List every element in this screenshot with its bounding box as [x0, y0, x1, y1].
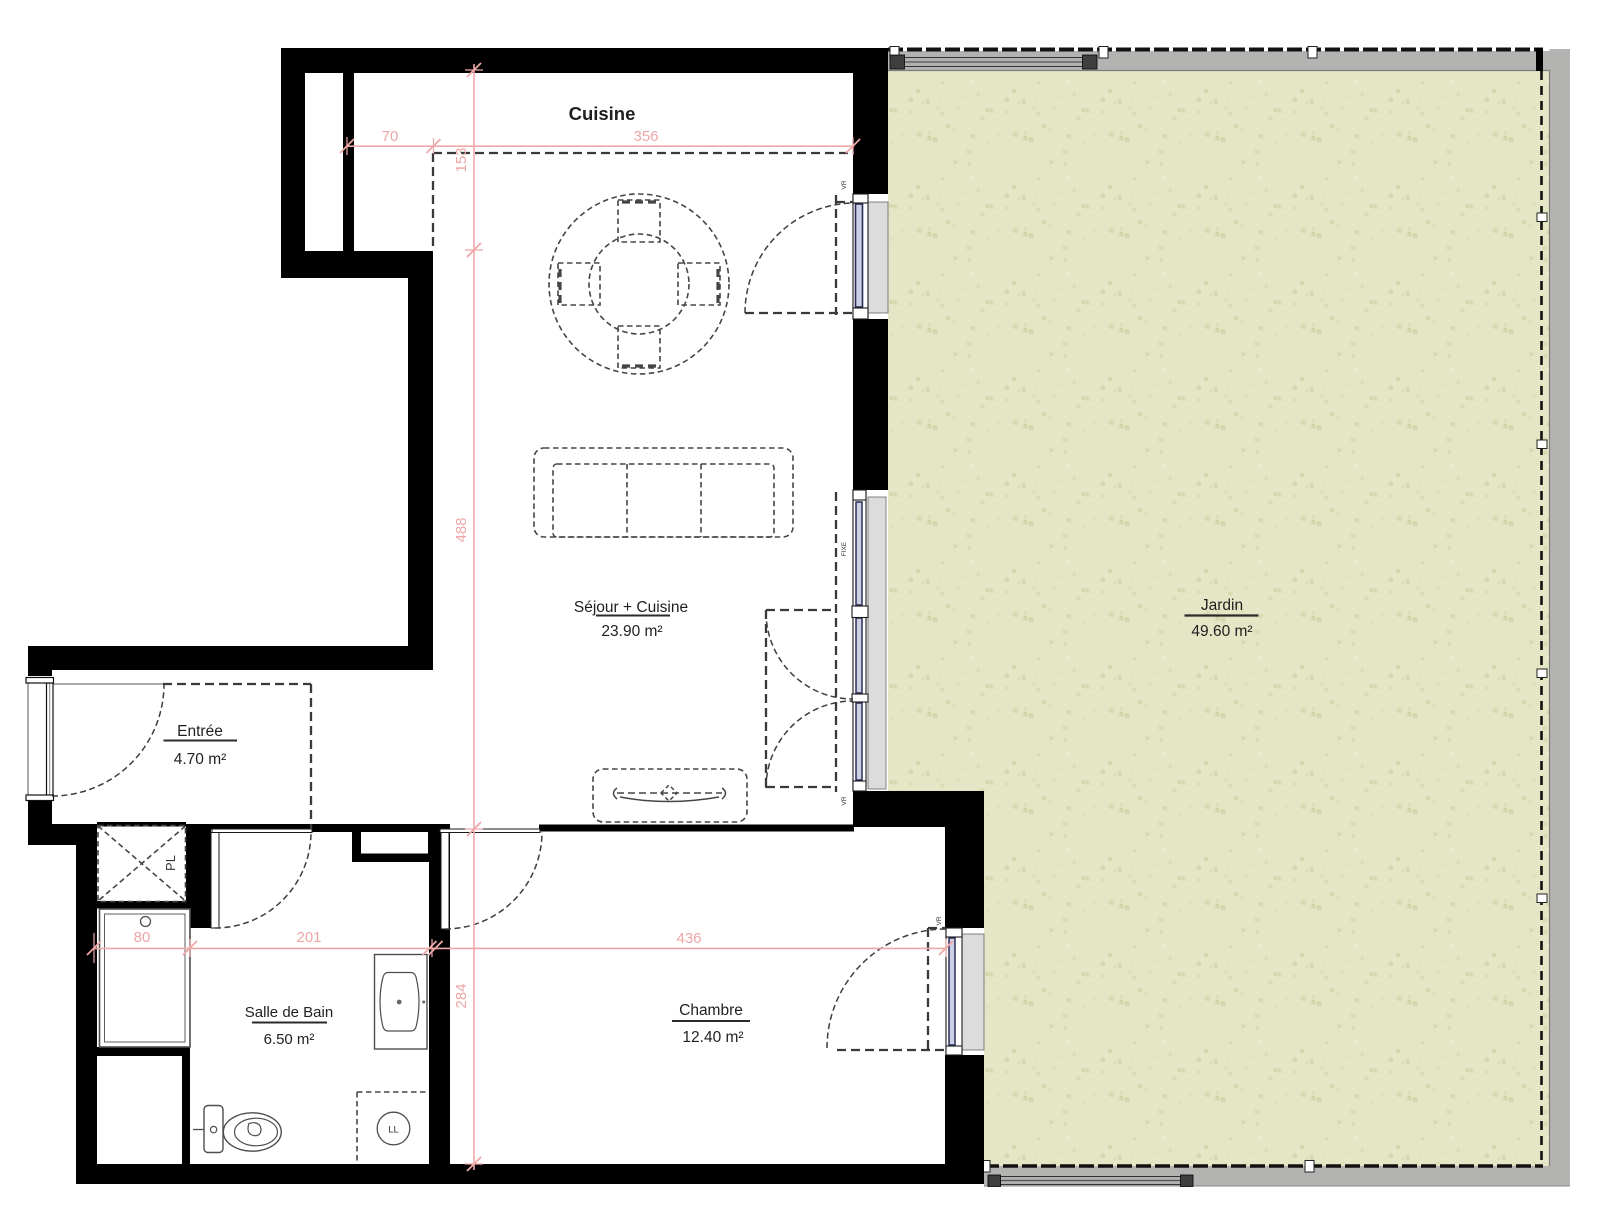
- svg-text:488: 488: [453, 517, 470, 542]
- svg-text:Salle de Bain: Salle de Bain: [245, 1004, 333, 1021]
- svg-text:VR: VR: [936, 916, 943, 925]
- svg-text:Entrée: Entrée: [177, 723, 223, 740]
- svg-text:Cuisine: Cuisine: [569, 103, 636, 124]
- svg-text:VR: VR: [841, 180, 848, 189]
- svg-text:FIXE: FIXE: [841, 541, 848, 556]
- svg-text:6.50 m²: 6.50 m²: [264, 1031, 315, 1048]
- svg-text:LL: LL: [388, 1125, 399, 1136]
- svg-text:70: 70: [382, 128, 399, 145]
- svg-text:Jardin: Jardin: [1201, 597, 1243, 614]
- svg-text:284: 284: [453, 983, 470, 1008]
- svg-text:356: 356: [633, 128, 658, 145]
- svg-text:436: 436: [676, 930, 701, 947]
- svg-text:23.90 m²: 23.90 m²: [601, 623, 662, 640]
- svg-text:49.60 m²: 49.60 m²: [1191, 623, 1252, 640]
- svg-text:4.70 m²: 4.70 m²: [174, 751, 227, 768]
- svg-text:PL: PL: [163, 855, 178, 871]
- svg-text:80: 80: [134, 929, 151, 946]
- svg-text:12.40 m²: 12.40 m²: [682, 1029, 743, 1046]
- svg-text:VR: VR: [841, 796, 848, 805]
- svg-text:153: 153: [453, 147, 470, 172]
- svg-text:Chambre: Chambre: [679, 1002, 743, 1019]
- svg-text:201: 201: [296, 929, 321, 946]
- svg-text:Séjour + Cuisine: Séjour + Cuisine: [574, 599, 688, 616]
